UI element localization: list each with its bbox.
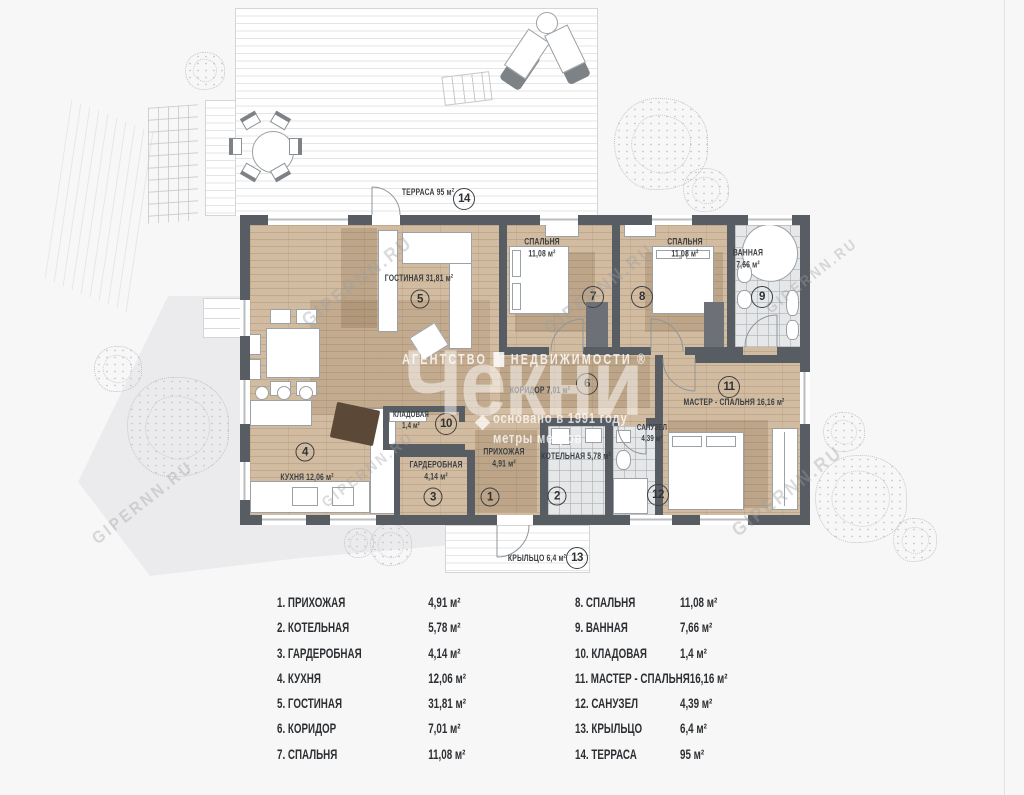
door-arc	[663, 359, 695, 391]
room-number-bedroom-2: 8	[631, 286, 653, 308]
room-label-master: МАСТЕР - СПАЛЬНЯ 16,16 м²	[684, 397, 785, 409]
room-number-boiler: 2	[548, 487, 567, 506]
agency-logo-square	[494, 352, 505, 367]
room-number-porch: 13	[566, 547, 588, 569]
room-label-bathroom: ВАННАЯ 7,66 м²	[733, 248, 763, 273]
room-label-boiler: КОТЕЛЬНАЯ 5,78 м²	[541, 451, 611, 463]
room-label-living: ГОСТИНАЯ 31,81 м²	[385, 273, 453, 285]
room-number-hallway: 1	[481, 488, 500, 507]
room-label-kitchen: КУХНЯ 12,06 м²	[280, 472, 333, 484]
watermark-tagline: основано в 1991 году метры метров	[493, 409, 627, 450]
door-arc	[372, 187, 400, 215]
room-number-wardrobe: 3	[424, 488, 443, 507]
room-number-master: 11	[718, 376, 740, 398]
room-number-living: 5	[411, 290, 430, 309]
watermark-agency-line: АГЕНТСТВО НЕДВИЖИМОСТИ ®	[402, 351, 647, 368]
room-label-wardrobe: ГАРДЕРОБНАЯ 4,14 м²	[409, 460, 462, 485]
room-label-terrace: ТЕРРАСА 95 м²	[402, 187, 454, 199]
room-number-kitchen: 4	[296, 443, 315, 462]
room-label-bedroom-1: СПАЛЬНЯ 11,08 м²	[524, 237, 559, 262]
room-number-terrace: 14	[453, 188, 475, 210]
floor-plan-page: ТЕРРАСА 95 м² 14 ГОСТИНАЯ 31,81 м² 5 КУХ…	[0, 0, 1024, 795]
room-label-hallway: ПРИХОЖАЯ 4,91 м²	[483, 447, 524, 472]
room-label-bedroom-2: СПАЛЬНЯ 11,08 м²	[667, 237, 702, 262]
watermark-agency-suffix: НЕДВИЖИМОСТИ ®	[511, 351, 647, 368]
door-arc	[745, 315, 777, 347]
room-label-porch: КРЫЛЬЦО 6,4 м²	[508, 553, 566, 565]
watermark-agency-prefix: АГЕНТСТВО	[402, 351, 487, 368]
door-arc	[651, 319, 683, 351]
room-number-wc: 12	[647, 484, 669, 506]
